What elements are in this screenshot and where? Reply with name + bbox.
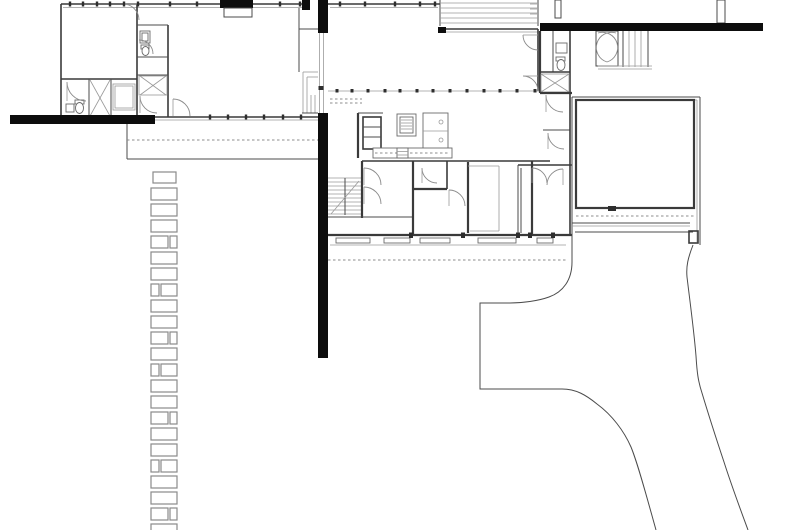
west-retaining-wall [10, 115, 155, 124]
floor-plan-drawing [0, 0, 800, 530]
west-south-glass-ticks [300, 115, 302, 120]
north-wall-ticks [169, 2, 171, 7]
north-wall-ticks [434, 2, 436, 7]
gallery-glass-ticks [516, 89, 519, 93]
stepping-stone [151, 524, 177, 530]
north-wall-ticks [69, 2, 71, 7]
stepping-stone [151, 508, 168, 520]
stair-east [598, 31, 652, 69]
stepping-stone [151, 236, 168, 248]
stepping-stone [151, 204, 177, 216]
terrace-west [127, 124, 318, 159]
site-layer [127, 124, 748, 530]
stepping-stone-small [151, 364, 159, 376]
north-wall-ticks [137, 2, 139, 7]
north-wall-ticks [339, 2, 341, 7]
core-wall-main [318, 113, 328, 358]
kitchen [358, 113, 452, 158]
stepping-stone [151, 380, 177, 392]
west-doors [67, 4, 190, 116]
hall-closet [596, 31, 618, 66]
south-facade-piers [551, 233, 555, 239]
middle-wing [328, 0, 572, 243]
gallery-glass-ticks [449, 89, 452, 93]
stepping-stone [151, 332, 168, 344]
north-wall-ticks [279, 2, 281, 7]
south-facade-piers [528, 233, 532, 239]
garage-room [576, 100, 694, 208]
chimney-block [220, 0, 253, 8]
north-wall-ticks [123, 2, 125, 7]
north-wall-ticks [196, 2, 198, 7]
stepping-stone [161, 364, 177, 376]
north-wall-ticks [299, 2, 301, 7]
north-wall-ticks [394, 2, 396, 7]
chimney [717, 0, 725, 23]
stepping-stone-small [151, 284, 159, 296]
stepping-stone [151, 316, 177, 328]
shower [113, 84, 135, 110]
south-facade-piers [516, 233, 520, 239]
west-south-glass-ticks [245, 115, 247, 120]
gallery-glass-ticks [483, 89, 486, 93]
south-facade [328, 235, 572, 243]
stepping-stone [151, 220, 177, 232]
stepping-stone [161, 460, 177, 472]
stepping-stone-small [151, 460, 159, 472]
gallery-glass-ticks [416, 89, 419, 93]
gallery-glass-ticks [351, 89, 354, 93]
south-facade-piers [409, 233, 413, 239]
stepping-stone [151, 492, 177, 504]
east-wing [518, 0, 725, 245]
gallery-glass-ticks [384, 89, 387, 93]
west-south-glass-ticks [263, 115, 265, 120]
stepping-stone [151, 252, 177, 264]
stepping-stone [151, 444, 177, 456]
stepping-stone-small [170, 412, 177, 424]
gallery-glass-ticks [399, 89, 402, 93]
gallery-glass-ticks [367, 89, 370, 93]
bedrooms [328, 161, 563, 236]
deck-planks [440, 0, 538, 32]
driveway [480, 243, 748, 530]
stepping-stone [151, 396, 177, 408]
counter [423, 113, 448, 150]
gallery-glass-ticks [499, 89, 502, 93]
west-south-glass-ticks [227, 115, 229, 120]
stepping-stone-small [170, 236, 177, 248]
stepping-stone [151, 348, 177, 360]
west-south-glass-ticks [282, 115, 284, 120]
west-south-glass-ticks [209, 115, 211, 120]
gallery-glass-ticks [534, 89, 537, 93]
wc-fixtures [66, 100, 84, 114]
stepping-stone [151, 188, 177, 200]
floor-plan-page [0, 0, 800, 530]
north-wall-ticks [364, 2, 366, 7]
north-wall-ticks [82, 2, 84, 7]
entry-steps [299, 8, 318, 113]
gallery-glass-ticks [336, 89, 339, 93]
driveway-right-edge [687, 245, 748, 530]
stepping-stone [151, 300, 177, 312]
south-facade-piers [461, 233, 465, 239]
west-wing [61, 4, 324, 120]
gallery-glass-ticks [466, 89, 469, 93]
east-retaining-wall [540, 23, 763, 31]
east-bathroom [518, 31, 572, 236]
stepping-stone [161, 284, 177, 296]
north-wall-ticks [109, 2, 111, 7]
stepping-stone [153, 172, 176, 183]
north-wall-ticks [96, 2, 98, 7]
stepping-stone [151, 268, 177, 280]
gallery-glass-ticks [432, 89, 435, 93]
stepping-stone-path [151, 188, 177, 530]
stepping-stone [151, 428, 177, 440]
stepping-stone-small [170, 508, 177, 520]
north-wall-ticks [419, 2, 421, 7]
stepping-stone-small [170, 332, 177, 344]
garage [572, 97, 700, 245]
stepping-stone [151, 412, 168, 424]
poche-walls [10, 0, 763, 358]
core-wall-top [318, 0, 328, 33]
stepping-stone [151, 476, 177, 488]
stair-west [328, 178, 362, 215]
driveway-left-edge [480, 243, 656, 530]
